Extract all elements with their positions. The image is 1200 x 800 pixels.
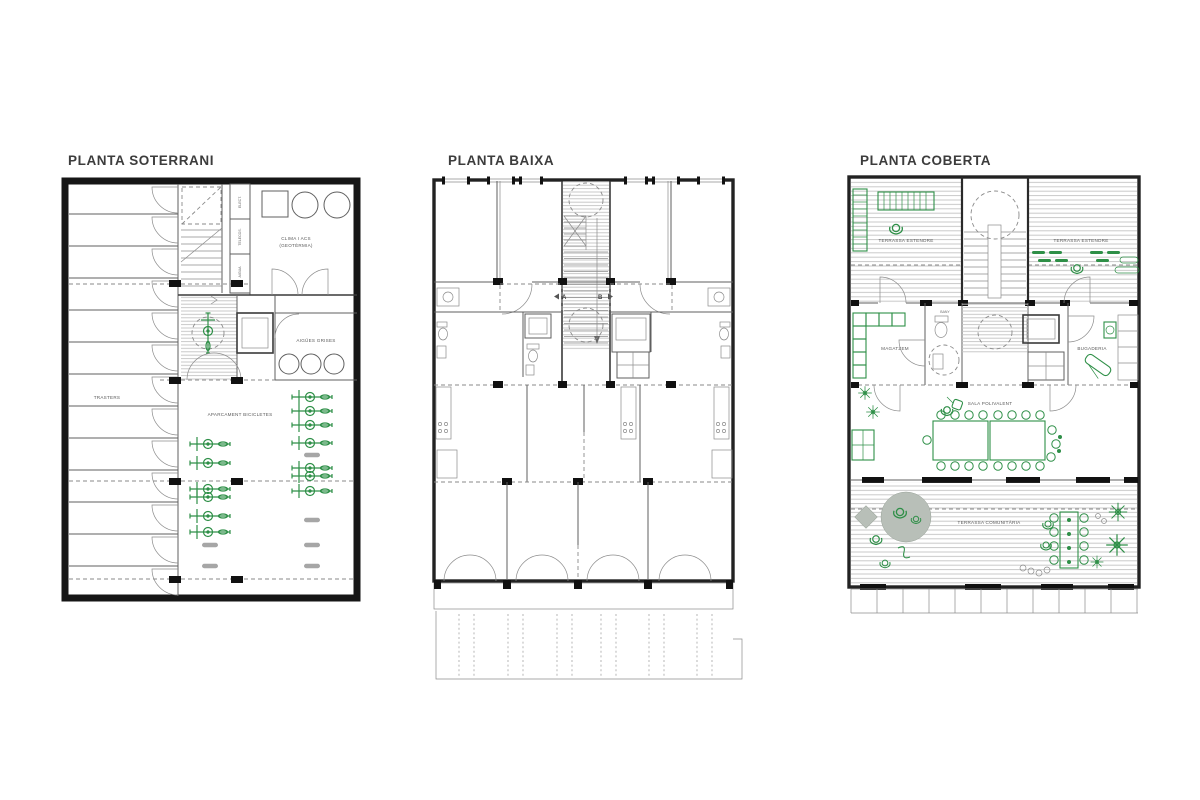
label-bugaderia: BUGADERIA (1077, 346, 1107, 351)
coberta-stair (962, 177, 1028, 303)
gravel-circle (881, 492, 931, 542)
label-bany: BANY (940, 310, 950, 314)
plant-icon (858, 386, 872, 400)
label-trasters: TRASTERS (94, 395, 121, 400)
label-elect: ELECT. (238, 196, 242, 208)
label-clima-1: CLIMA I ACS (281, 236, 311, 241)
label-clima-2: (GEOTÈRMIA) (279, 242, 313, 248)
label-aparcament: APARCAMENT BICICLETES (208, 412, 273, 417)
floor-plans-canvas: PLANTA SOTERRANI TRASTERS (0, 0, 1200, 800)
label-telecos: TELECOS. (238, 228, 242, 245)
label-magatzem: MAGATZEM (881, 346, 909, 351)
plant-icon (866, 405, 880, 419)
label-terrassa-comunitaria: TERRASSA COMUNITÀRIA (958, 519, 1022, 525)
label-entry-b: B (598, 295, 603, 301)
coberta-terrassa-comunitaria: TERRASSA COMUNITÀRIA (851, 482, 1137, 585)
plan-title-baixa: PLANTA BAIXA (448, 153, 554, 168)
floor-plans-page: PLANTA SOTERRANI TRASTERS (0, 0, 1200, 800)
label-aigues-grises: AIGÜES GRISES (296, 337, 335, 343)
plant-icon (1109, 503, 1127, 521)
label-sala-polivalent: SALA POLIVALENT (968, 401, 1013, 406)
plan-title-coberta: PLANTA COBERTA (860, 153, 991, 168)
plan-title-soterrani: PLANTA SOTERRANI (68, 153, 214, 168)
label-aigua: AIGUA (238, 266, 242, 278)
label-entry-a: A (562, 295, 567, 301)
label-terrassa-estendre-right: TERRASSA ESTENDRE (1053, 238, 1108, 243)
label-terrassa-estendre-left: TERRASSA ESTENDRE (878, 238, 933, 243)
page-background (0, 0, 1200, 800)
